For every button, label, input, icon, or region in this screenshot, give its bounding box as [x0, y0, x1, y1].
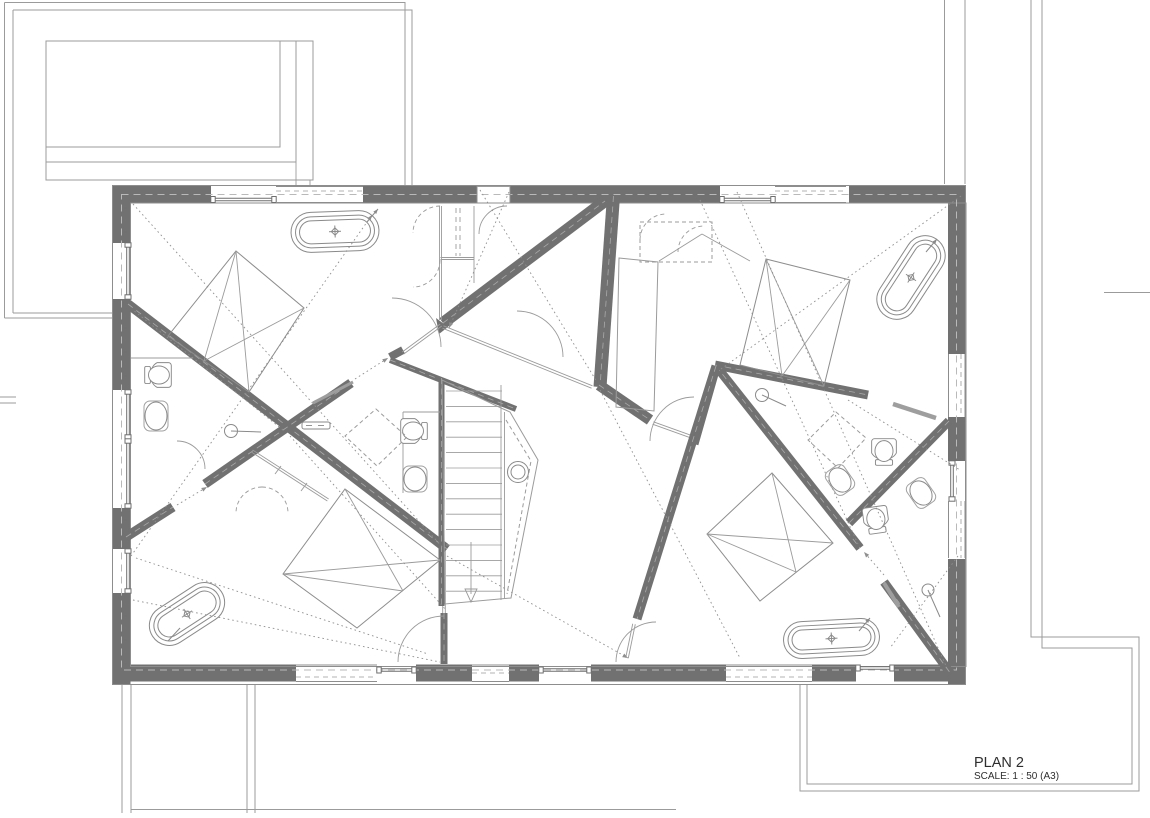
- svg-text:PLAN 2: PLAN 2: [974, 755, 1024, 771]
- svg-text:SCALE: 1 : 50 (A3): SCALE: 1 : 50 (A3): [974, 771, 1059, 782]
